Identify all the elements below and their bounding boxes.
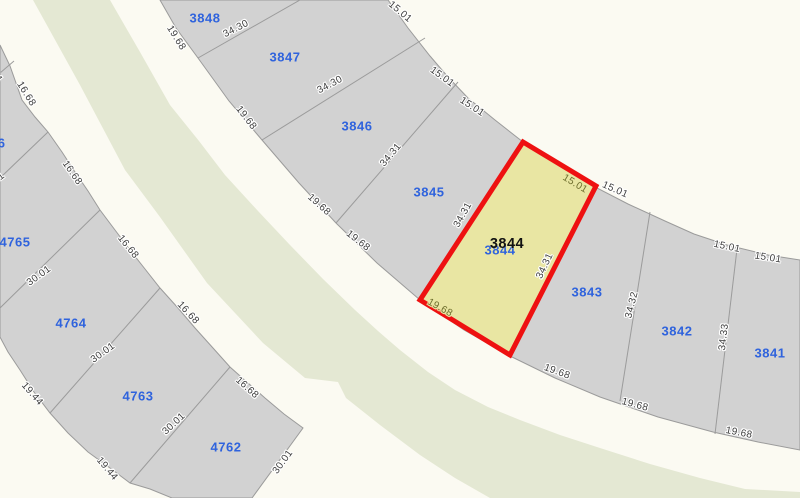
map-svg <box>0 0 800 498</box>
map-canvas[interactable]: 3848384738463845384438433842384147664765… <box>0 0 800 498</box>
